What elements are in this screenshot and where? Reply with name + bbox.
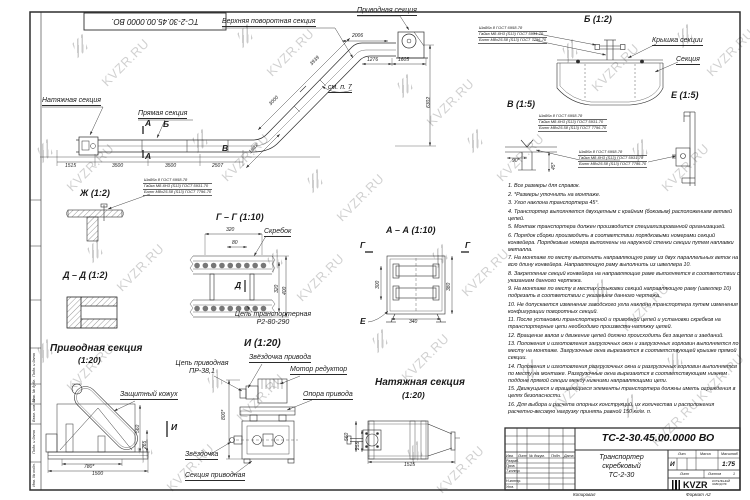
i-detail-view	[209, 364, 312, 476]
detail-b-view	[533, 33, 678, 105]
drawing-linework	[0, 0, 750, 500]
main-elevation-view	[40, 16, 436, 168]
drawing-sheet: { "watermark": { "text": "KVZR.RU", "pos…	[0, 0, 750, 500]
drive-section-view	[46, 382, 167, 473]
sheet-frame	[30, 12, 740, 490]
detail-zh-view	[67, 194, 151, 241]
tension-section-view	[347, 421, 460, 464]
titleblock-lines	[505, 428, 740, 490]
section-gg-view	[190, 234, 289, 317]
detail-v-view	[505, 140, 620, 172]
detail-e-view	[648, 112, 695, 186]
section-aa-view	[365, 252, 469, 322]
detail-dd-view	[67, 297, 117, 328]
